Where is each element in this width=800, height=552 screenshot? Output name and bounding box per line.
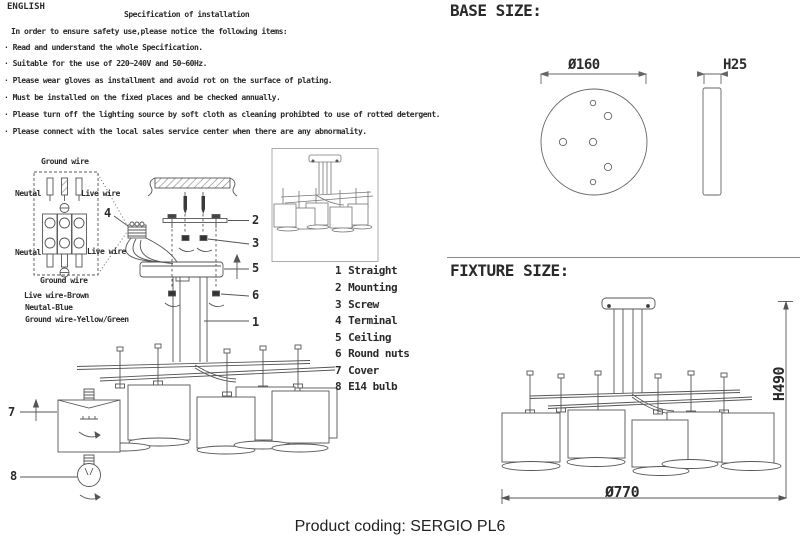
spec-item-text: Read and understand the whole Specificat… bbox=[13, 43, 203, 52]
parts-list-row: 2Mounting bbox=[335, 281, 397, 294]
spec-item: · Read and understand the whole Specific… bbox=[4, 43, 203, 52]
spec-intro: In order to ensure safety use,please not… bbox=[11, 27, 287, 36]
spec-item: · Please wear gloves as installment and … bbox=[4, 76, 332, 85]
inset-assembled-view bbox=[272, 149, 378, 262]
callout-bulb: 8 bbox=[10, 469, 17, 483]
callout-mounting: 2 bbox=[252, 213, 259, 227]
callout-screw: 3 bbox=[252, 236, 259, 250]
callout-ceiling: 5 bbox=[252, 261, 259, 275]
part-name: Ceiling bbox=[348, 331, 391, 344]
parts-list-row: 8E14 bulb bbox=[335, 380, 397, 393]
spec-item-text: Please turn off the lighting source by s… bbox=[13, 110, 440, 119]
part-num: 3 bbox=[335, 298, 341, 311]
legend-ground-wire: Ground wire-Yellow/Green bbox=[25, 315, 129, 324]
installation-diagram-art bbox=[0, 148, 385, 516]
bullet: · bbox=[4, 43, 8, 52]
part-name: Terminal bbox=[348, 314, 397, 327]
assembly-diagram-drawing bbox=[114, 178, 249, 362]
part-name: E14 bulb bbox=[348, 380, 397, 393]
spec-item: · Please turn off the lighting source by… bbox=[4, 110, 440, 119]
bullet: · bbox=[4, 127, 8, 136]
part-num: 4 bbox=[335, 314, 341, 327]
part-num: 8 bbox=[335, 380, 341, 393]
live-wire-bottom-label: Live wire bbox=[87, 247, 126, 256]
part-num: 6 bbox=[335, 347, 341, 360]
fixture-size-heading: FIXTURE SIZE: bbox=[450, 261, 569, 280]
spec-title: Specification of installation bbox=[124, 10, 249, 19]
parts-list-row: 1Straight bbox=[335, 264, 397, 277]
language-label: ENGLISH bbox=[7, 2, 45, 12]
parts-list-row: 7Cover bbox=[335, 364, 379, 377]
part-num: 1 bbox=[335, 264, 341, 277]
ground-wire-bottom-label: Ground wire bbox=[40, 276, 87, 285]
legend-neutral: Neutal-Blue bbox=[25, 303, 72, 312]
spec-item: · Must be installed on the fixed places … bbox=[4, 93, 280, 102]
wiring-diagram-drawing bbox=[34, 172, 127, 277]
part-name: Cover bbox=[348, 364, 379, 377]
spec-item-text: Suitable for the use of 220~240V and 50~… bbox=[13, 59, 207, 68]
fixture-size-art bbox=[440, 290, 800, 515]
bullet: · bbox=[4, 59, 8, 68]
product-coding: Product coding: SERGIO PL6 bbox=[295, 518, 506, 536]
part-num: 7 bbox=[335, 364, 341, 377]
parts-list-row: 6Round nuts bbox=[335, 347, 409, 360]
fixture-diameter-dimension: Ø770 bbox=[605, 483, 639, 501]
callout-round-nuts: 6 bbox=[252, 288, 259, 302]
spec-item-text: Please connect with the local sales serv… bbox=[13, 127, 367, 136]
base-size-heading: BASE SIZE: bbox=[450, 1, 541, 20]
bullet: · bbox=[4, 76, 8, 85]
bullet: · bbox=[4, 110, 8, 119]
assembled-fixture-drawing bbox=[20, 344, 337, 500]
part-num: 5 bbox=[335, 331, 341, 344]
part-name: Screw bbox=[348, 298, 379, 311]
spec-item: · Suitable for the use of 220~240V and 5… bbox=[4, 59, 207, 68]
section-divider bbox=[447, 257, 800, 258]
spec-item: · Please connect with the local sales se… bbox=[4, 127, 367, 136]
bullet: · bbox=[4, 93, 8, 102]
callout-terminal: 4 bbox=[104, 206, 111, 220]
callout-straight: 1 bbox=[252, 315, 259, 329]
part-num: 2 bbox=[335, 281, 341, 294]
spec-item-text: Please wear gloves as installment and av… bbox=[13, 76, 332, 85]
parts-list-row: 4Terminal bbox=[335, 314, 397, 327]
part-name: Mounting bbox=[348, 281, 397, 294]
fixture-height-dimension: H490 bbox=[770, 349, 788, 419]
parts-list-row: 5Ceiling bbox=[335, 331, 391, 344]
base-thickness-dimension: H25 bbox=[723, 57, 747, 73]
legend-live-wire: Live wire-Brown bbox=[24, 291, 89, 300]
parts-list-row: 3Screw bbox=[335, 298, 379, 311]
part-name: Straight bbox=[348, 264, 397, 277]
neutral-bottom-label: Neutal bbox=[15, 248, 41, 257]
neutral-top-label: Neutal bbox=[15, 189, 41, 198]
base-diameter-dimension: Ø160 bbox=[568, 57, 600, 73]
live-wire-top-label: Live wire bbox=[81, 189, 120, 198]
spec-sheet-page: ENGLISH Specification of installation In… bbox=[0, 0, 800, 552]
part-name: Round nuts bbox=[348, 347, 409, 360]
callout-cover: 7 bbox=[8, 405, 15, 419]
base-size-art bbox=[440, 50, 800, 210]
ground-wire-top-label: Ground wire bbox=[41, 157, 88, 166]
spec-item-text: Must be installed on the fixed places an… bbox=[13, 93, 281, 102]
